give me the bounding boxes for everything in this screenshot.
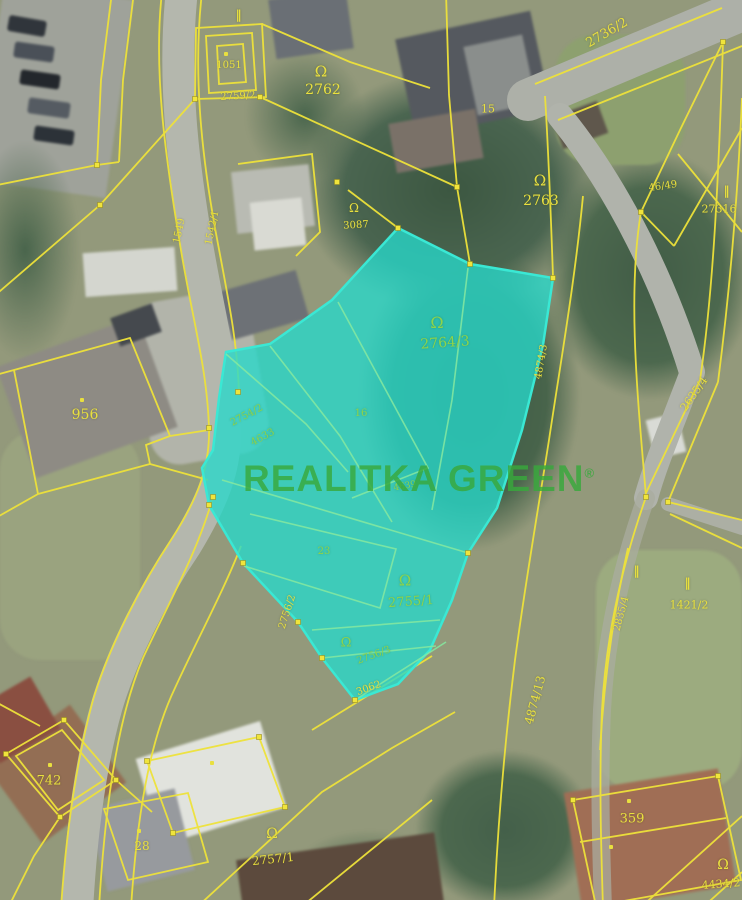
watermark: REALITKA GREEN® (243, 458, 595, 500)
watermark-registered-icon: ® (585, 466, 596, 481)
map-canvas[interactable]: ‖10512759/2Ω2762152736/2Ω2763Ω308746/49‖… (0, 0, 742, 900)
road-northeast (528, 10, 742, 100)
track-fork (668, 504, 742, 528)
track-right-lower (600, 498, 646, 900)
cadastral-overlay (0, 0, 742, 900)
watermark-text: REALITKA GREEN (243, 458, 585, 499)
